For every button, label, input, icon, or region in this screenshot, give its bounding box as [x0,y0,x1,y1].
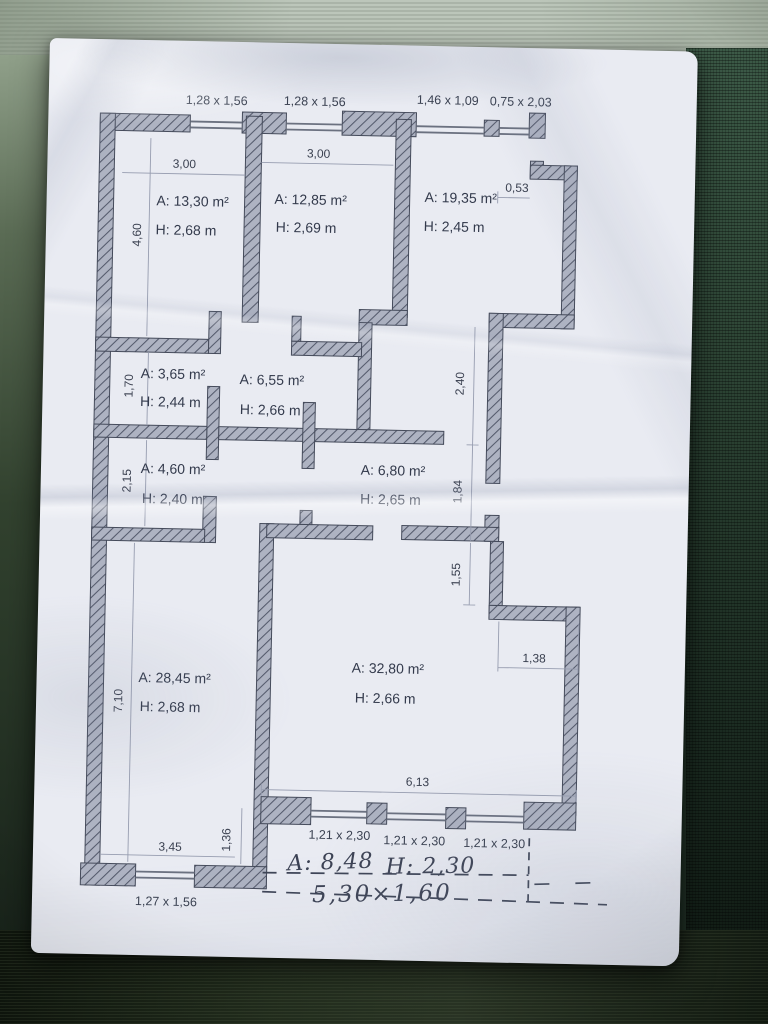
room-height-label: H: 2,65 m [360,491,421,508]
wall-segment [446,807,466,828]
window-glass-line [416,126,484,133]
window-label: 1,46 x 1,09 [417,93,479,108]
room-area-label: A: 32,80 m² [352,659,425,677]
labels-layer: 1,28 x 1,56 1,28 x 1,56 1,46 x 1,09 0,75… [107,87,558,917]
wall-segment [392,119,411,317]
window-glass-line [499,128,529,135]
dimension-label: 1,36 [219,828,233,852]
wall-segment [91,527,204,542]
dimension-line [100,854,235,857]
wall-segment [206,386,220,459]
dimension-line [261,162,393,165]
wall-segment [208,311,221,353]
wall-segment [524,802,577,830]
dimension-line [145,440,147,526]
wall-segment [529,113,546,138]
room-area-label: A: 3,65 m² [141,365,206,382]
wall-segment [292,316,302,341]
dimension-label: 0,53 [505,181,529,195]
wall-segment [486,313,504,483]
dimension-label: 6,13 [406,775,430,789]
window-glass-line [387,813,446,820]
room-height-label: H: 2,45 m [424,218,485,235]
wall-segment [561,166,577,329]
balcony-dashed-line [528,838,529,902]
room-height-label: H: 2,40 m [142,490,203,507]
room-area-label: A: 12,85 m² [274,191,347,209]
room-height-label: H: 2,66 m [355,690,416,707]
window-label: 0,75 x 2,03 [490,94,552,109]
wall-segment [484,120,499,136]
window-label: 1,28 x 1,56 [284,94,346,109]
dimension-label: 1,55 [449,562,463,586]
wall-segment [252,524,274,889]
dimension-line [467,327,481,445]
wall-segment [267,524,373,540]
room-area-label: A: 4,60 m² [141,460,206,477]
wall-segment [302,402,315,468]
wall-segment [261,797,312,825]
room-height-label: H: 2,44 m [140,393,201,410]
dimension-label: 1,38 [522,651,546,665]
window-label: 1,21 x 2,30 [383,833,445,848]
wall-segment [562,607,580,815]
wall-segment [242,116,262,322]
dimension-line [122,173,245,176]
wall-segment [94,424,207,439]
dimension-line [241,808,242,864]
room-area-label: A: 13,30 m² [156,192,229,210]
room-height-label: H: 2,69 m [276,219,337,236]
dimension-label: 3,45 [158,839,182,853]
balcony-dashed-line [534,880,617,886]
wall-segment [357,323,372,430]
dimension-label: 4,60 [130,223,144,247]
handwritten-balcony-area: A: 8,48 [285,849,374,877]
wall-segment [80,863,135,886]
wall-segment [291,341,361,356]
dimension-line [128,543,135,862]
floorplan-paper: 1,28 x 1,56 1,28 x 1,56 1,46 x 1,09 0,75… [31,38,698,966]
floor-plan-svg: 1,28 x 1,56 1,28 x 1,56 1,46 x 1,09 0,75… [61,69,624,938]
window-glass-line [311,811,367,818]
dimension-label: 1,84 [450,479,464,503]
window-glass-line [135,871,194,878]
wall-segment [84,113,115,885]
window-label: 1,28 x 1,56 [186,93,248,108]
dimension-label: 2,15 [120,469,134,493]
window-label: 1,21 x 2,30 [463,836,525,851]
room-height-label: H: 2,68 m [155,221,216,238]
room-area-label: A: 19,35 m² [424,189,497,207]
wall-segment [402,525,499,541]
dimension-line [147,352,149,425]
window-glass-line [190,121,242,128]
wall-segment [367,803,387,824]
room-height-label: H: 2,68 m [140,698,201,715]
dimension-label: 3,00 [173,157,197,171]
dimension-label: 2,40 [453,372,467,396]
window-glass-line [286,123,342,130]
room-area-label: A: 28,45 m² [138,669,211,687]
table-surface-right-band [686,48,768,1024]
handwritten-balcony-height: H: 2,30 [385,854,476,880]
window-label: 1,21 x 2,30 [308,828,370,843]
room-height-label: H: 2,66 m [240,401,301,418]
dimension-label: 7,10 [111,688,125,712]
room-area-label: A: 6,80 m² [361,462,426,479]
room-area-label: A: 6,55 m² [239,371,304,388]
wall-segment [95,337,208,353]
dimension-label: 1,70 [121,374,135,398]
wall-segment [219,427,444,445]
wall-segment [300,510,312,524]
window-label: 1,27 x 1,56 [135,894,197,909]
wall-segment [194,865,266,889]
dimension-line [147,138,151,336]
dimension-line [463,543,476,605]
dimension-label: 3,00 [307,146,331,160]
window-glass-line [466,815,524,822]
handwritten-balcony-size: 5,30×1,60 [312,880,452,908]
